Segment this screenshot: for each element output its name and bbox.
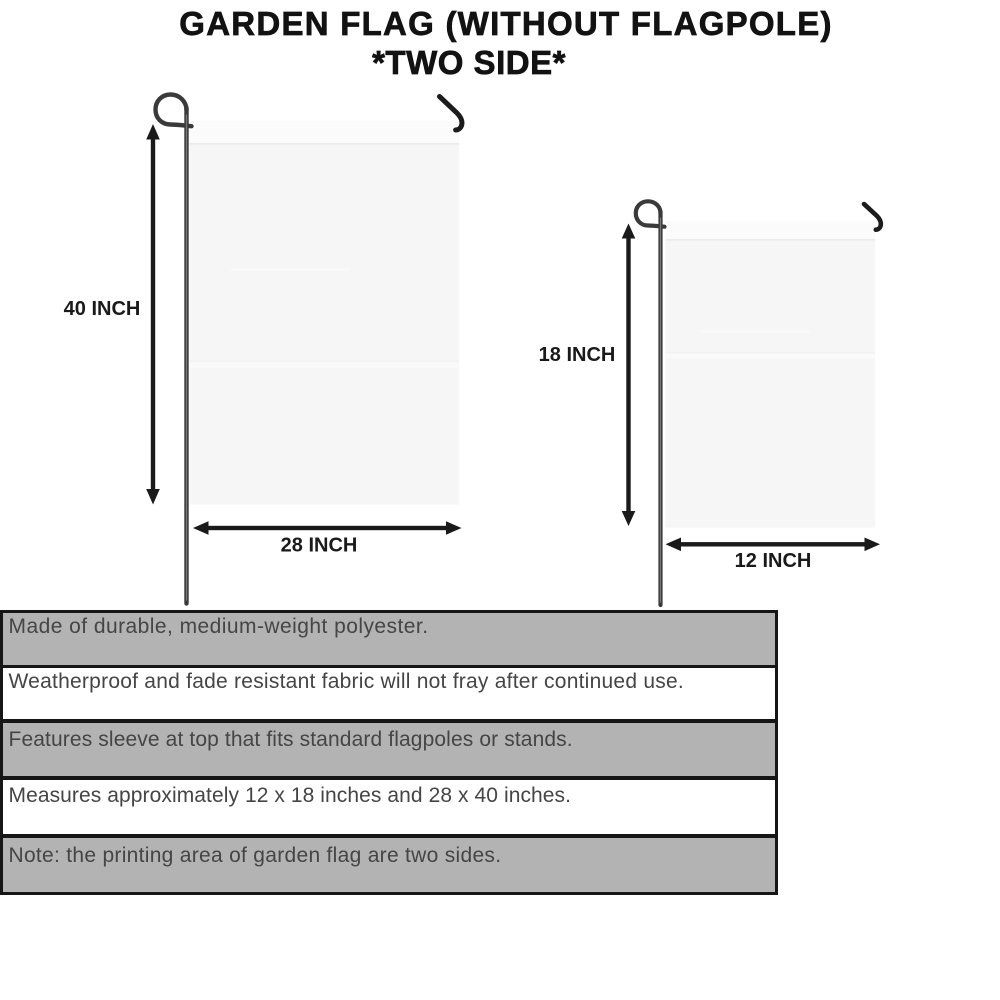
svg-text:12 INCH: 12 INCH <box>735 550 812 572</box>
svg-text:40 INCH: 40 INCH <box>64 298 141 320</box>
svg-text:28 INCH: 28 INCH <box>281 535 358 557</box>
svg-text:18 INCH: 18 INCH <box>539 344 616 366</box>
